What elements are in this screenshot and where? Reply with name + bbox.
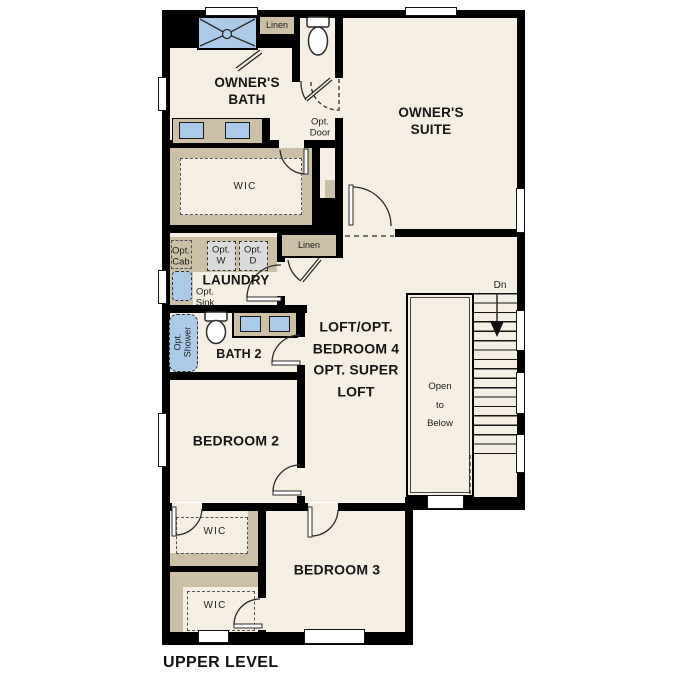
label-opt-washer: Opt. W <box>212 245 230 268</box>
wall-segment <box>310 198 338 225</box>
label-opt-dryer: Opt. D <box>244 245 262 268</box>
wall-segment <box>292 74 300 82</box>
wall-segment <box>277 296 285 305</box>
vanity-sink <box>240 316 261 332</box>
wall-segment <box>162 372 305 380</box>
wall-segment <box>297 496 305 503</box>
label-linen-hall: Linen <box>298 240 320 250</box>
label-linen-upper: Linen <box>266 20 288 30</box>
window <box>198 630 229 643</box>
room-label-bedroom3: BEDROOM 3 <box>294 561 381 579</box>
room-label-wic-bedroom2: WIC <box>203 526 226 539</box>
wic3-shelving <box>170 572 258 587</box>
wall-segment <box>162 565 266 572</box>
hall-nook-shelf <box>325 180 335 198</box>
wall-segment <box>312 148 320 198</box>
wall-segment <box>258 503 266 598</box>
window <box>516 434 525 473</box>
wall-segment <box>395 229 525 237</box>
label-opt-sink: Opt. Sink <box>196 287 214 310</box>
wall-segment <box>405 510 413 645</box>
room-label-owners-suite: OWNER'S SUITE <box>398 105 463 139</box>
room-label-loft: LOFT/OPT. BEDROOM 4 OPT. SUPER LOFT <box>313 317 400 404</box>
room-label-wic-bedroom3: WIC <box>203 600 226 613</box>
owners-shower <box>197 16 258 50</box>
stair-treads <box>474 293 517 454</box>
label-opt-cab: Opt. Cab <box>172 246 190 269</box>
wall-segment <box>405 497 525 510</box>
window <box>427 495 464 509</box>
wic2-shelving <box>170 553 258 566</box>
window <box>158 77 167 111</box>
vanity-sink <box>179 122 204 139</box>
wall-segment <box>262 118 270 148</box>
wic3-shelving <box>170 572 183 632</box>
room-label-bedroom2: BEDROOM 2 <box>193 432 280 450</box>
wall-segment <box>202 503 308 511</box>
wic2-shelving <box>248 511 258 566</box>
window <box>158 270 167 304</box>
room-label-owners-bath: OWNER'S BATH <box>214 75 279 109</box>
level-title: UPPER LEVEL <box>163 654 279 672</box>
vanity-sink <box>225 122 250 139</box>
label-open-to-below: Open to Below <box>427 378 453 434</box>
wall-segment <box>304 140 343 148</box>
label-stairs-down: Dn <box>494 280 507 292</box>
optional-sink <box>172 271 192 301</box>
label-opt-shower: Opt. Shower <box>173 327 194 358</box>
wall-segment <box>335 10 343 78</box>
label-opt-door: Opt. Door <box>310 117 331 140</box>
wall-segment <box>258 630 266 637</box>
window <box>405 7 457 16</box>
floor-plan: OWNER'S BATH Linen Opt. Door OWNER'S SUI… <box>0 0 687 687</box>
vanity-sink <box>269 316 290 332</box>
wall-segment <box>338 503 412 511</box>
room-label-wic-upper: WIC <box>233 181 256 194</box>
window <box>516 188 525 233</box>
wall-segment <box>297 305 305 337</box>
window <box>158 413 167 467</box>
window <box>304 629 365 644</box>
wall-segment <box>162 225 343 233</box>
window <box>516 372 525 414</box>
window <box>205 7 258 16</box>
wall-segment <box>297 365 305 468</box>
wall-segment <box>258 35 296 48</box>
wall-segment <box>162 503 172 511</box>
wall-segment <box>170 14 197 48</box>
room-label-bath2: BATH 2 <box>216 347 261 363</box>
window <box>516 310 525 351</box>
